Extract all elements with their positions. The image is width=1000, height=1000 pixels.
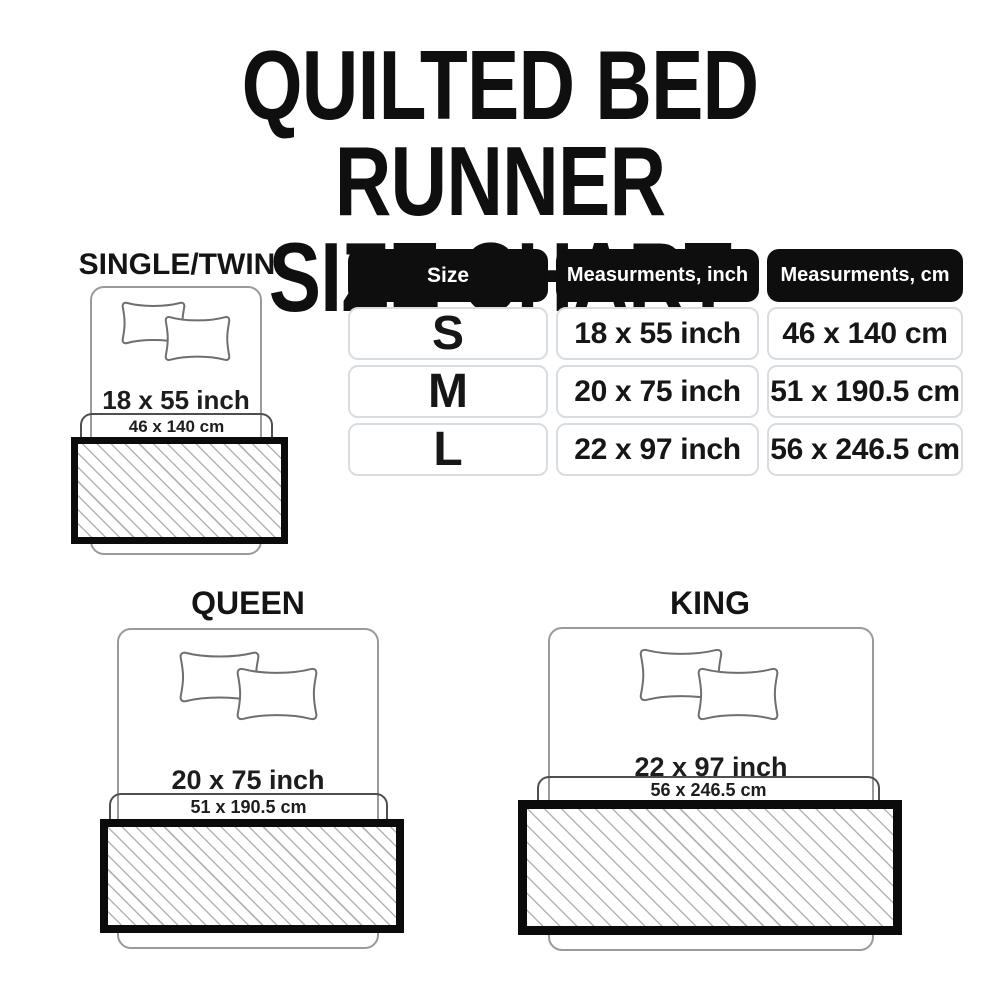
runner-size-inch: 22 x 97 inch	[548, 752, 874, 783]
width-bracket: 46 x 140 cm	[80, 413, 273, 437]
inch-cell-s: 18 x 55 inch	[556, 307, 759, 360]
size-table: Size Measurments, inch Measurments, cm S…	[348, 249, 963, 476]
size-cell-m: M	[348, 365, 548, 418]
runner-size-cm: 51 x 190.5 cm	[111, 797, 386, 818]
pillow-icon	[162, 312, 233, 365]
size-cell-s: S	[348, 307, 548, 360]
diagram-king: KING 22 x 97 inch 56 x 246.5 cm	[510, 583, 910, 951]
bed-size-label: SINGLE/TWIN	[52, 248, 302, 282]
column-header-cm: Measurments, cm	[767, 249, 963, 302]
runner-size-inch: 20 x 75 inch	[117, 765, 379, 796]
bed-size-label: KING	[510, 585, 910, 622]
size-cell-l: L	[348, 423, 548, 476]
pillow-icon	[694, 663, 782, 725]
diagram-queen: QUEEN 20 x 75 inch 51 x 190.5 cm	[98, 583, 398, 948]
column-header-size: Size	[348, 249, 548, 302]
column-header-inch: Measurments, inch	[556, 249, 759, 302]
pillow-icon	[233, 663, 321, 725]
page-title-line1: QUILTED BED RUNNER	[100, 37, 900, 229]
bed-size-label: QUEEN	[98, 585, 398, 622]
runner-size-cm: 46 x 140 cm	[82, 417, 271, 437]
runner-size-inch: 18 x 55 inch	[90, 385, 262, 416]
cm-cell-m: 51 x 190.5 cm	[767, 365, 963, 418]
inch-cell-l: 22 x 97 inch	[556, 423, 759, 476]
runner-size-cm: 56 x 246.5 cm	[539, 780, 878, 801]
cm-cell-l: 56 x 246.5 cm	[767, 423, 963, 476]
size-chart-infographic: QUILTED BED RUNNER SIZE CHART Size Measu…	[0, 0, 1000, 1000]
bed-runner	[71, 437, 288, 544]
width-bracket: 51 x 190.5 cm	[109, 793, 388, 819]
bed-runner	[518, 800, 902, 935]
diagram-single-twin: SINGLE/TWIN 18 x 55 inch 46 x 140 cm	[52, 248, 302, 560]
bed-runner	[100, 819, 404, 933]
cm-cell-s: 46 x 140 cm	[767, 307, 963, 360]
inch-cell-m: 20 x 75 inch	[556, 365, 759, 418]
